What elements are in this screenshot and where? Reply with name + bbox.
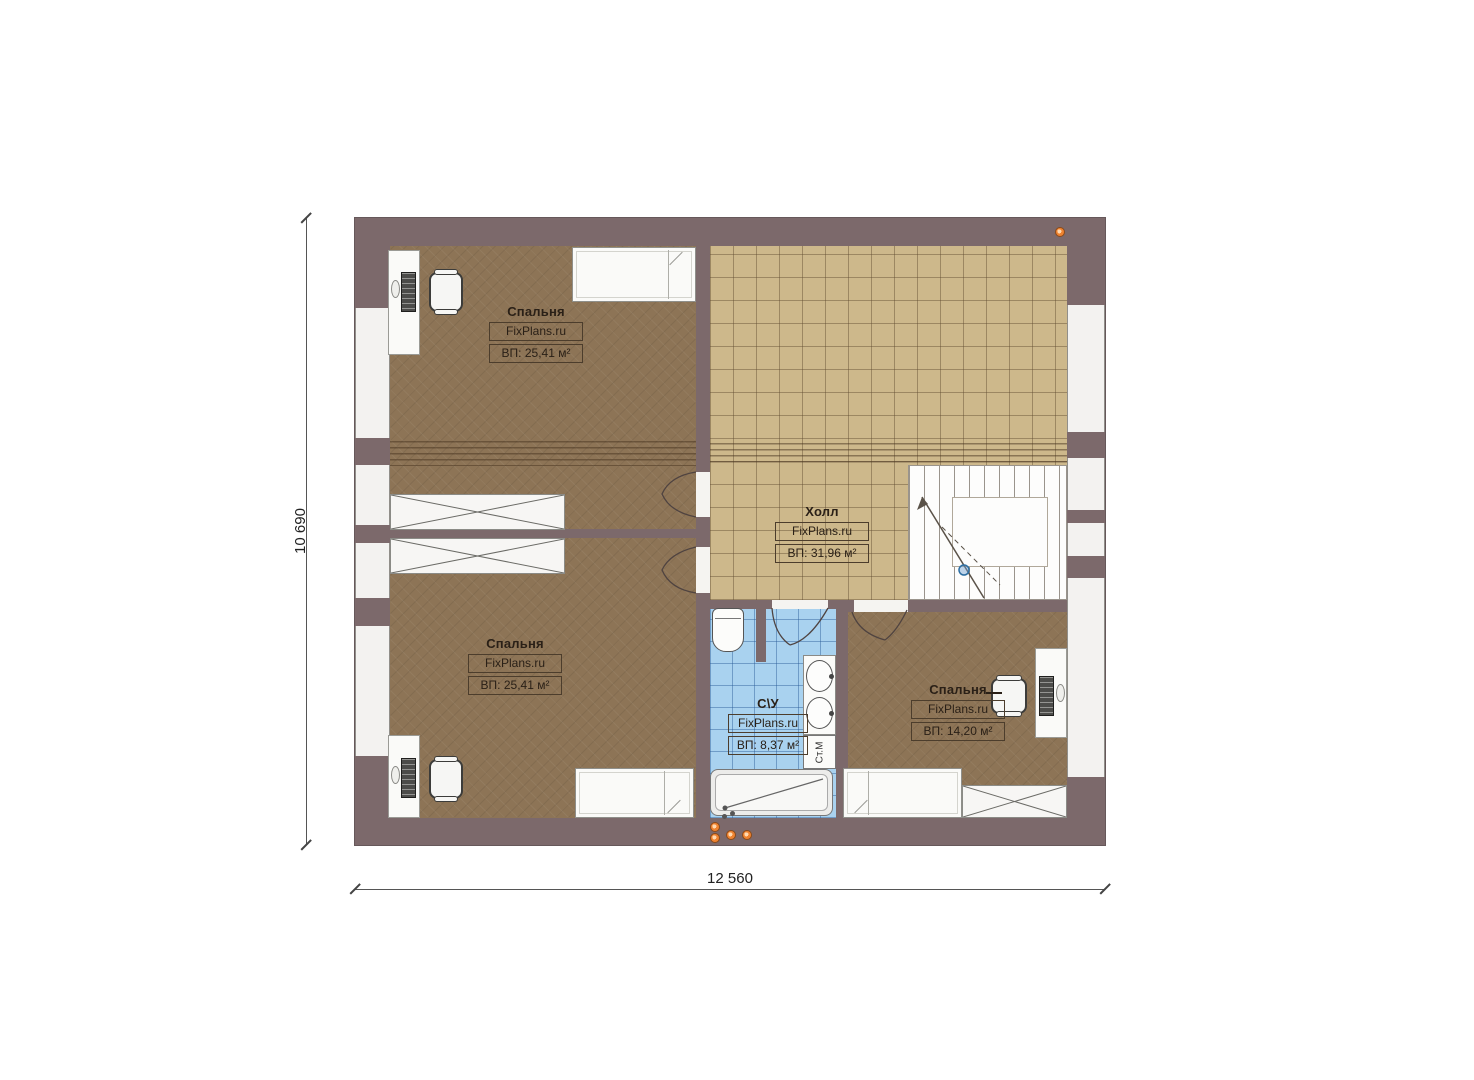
- brand-label: FixPlans.ru: [468, 654, 562, 673]
- socket-marker-icon: [742, 830, 752, 840]
- washing-machine-label: Ст.М: [814, 741, 825, 763]
- socket-marker-icon: [710, 822, 720, 832]
- label-leader-line: [986, 692, 1002, 694]
- toilet-icon: [712, 608, 744, 652]
- room-area: ВП: 8,37 м²: [728, 736, 808, 755]
- bed: [843, 768, 962, 818]
- room-label-hall: Холл FixPlans.ru ВП: 31,96 м²: [756, 504, 888, 563]
- wardrobe: [390, 538, 565, 574]
- room-name: Спальня: [486, 636, 544, 651]
- mouse-icon: [391, 280, 400, 298]
- dimension-line-width: [355, 889, 1105, 890]
- computer-icon: [401, 758, 416, 798]
- wardrobe: [962, 785, 1067, 818]
- room-name: Спальня: [929, 682, 987, 697]
- sink-icon: [806, 660, 833, 692]
- faucet-icon: [722, 814, 727, 819]
- socket-marker-icon: [726, 830, 736, 840]
- stairs-direction-line: [908, 465, 1067, 600]
- bathtub-detail: [711, 770, 834, 817]
- room-label-bedroom-3: Спальня FixPlans.ru ВП: 14,20 м²: [895, 682, 1021, 741]
- brand-label: FixPlans.ru: [728, 714, 808, 733]
- mouse-icon: [1056, 684, 1065, 702]
- door-swing-icon: [845, 605, 920, 655]
- room-label-bedroom-2: Спальня FixPlans.ru ВП: 25,41 м²: [452, 636, 578, 695]
- room-label-bathroom: С\У FixPlans.ru ВП: 8,37 м²: [722, 696, 814, 755]
- room-area: ВП: 25,41 м²: [468, 676, 562, 695]
- bed: [572, 247, 696, 302]
- brand-label: FixPlans.ru: [775, 522, 869, 541]
- mouse-icon: [391, 766, 400, 784]
- room-area: ВП: 31,96 м²: [775, 544, 869, 563]
- door-swing-icon: [760, 600, 840, 655]
- room-name: Холл: [805, 504, 838, 519]
- brand-label: FixPlans.ru: [911, 700, 1005, 719]
- wardrobe: [390, 494, 565, 530]
- room-name: С\У: [757, 696, 779, 711]
- bed: [575, 768, 694, 818]
- dimension-width-label: 12 560: [680, 870, 780, 887]
- computer-icon: [1039, 676, 1054, 716]
- office-chair-icon: [429, 272, 463, 312]
- office-chair-icon: [429, 759, 463, 799]
- faucet-icon: [730, 811, 735, 816]
- room-label-bedroom-1: Спальня FixPlans.ru ВП: 25,41 м²: [470, 304, 602, 363]
- floor-plan: Ст.М Спальня FixPlans.ru ВП: 25,41 м² Хо…: [0, 0, 1474, 1080]
- room-area: ВП: 25,41 м²: [489, 344, 583, 363]
- door-swing-icon: [640, 470, 710, 520]
- room-name: Спальня: [507, 304, 565, 319]
- brand-label: FixPlans.ru: [489, 322, 583, 341]
- bathtub: [710, 769, 833, 816]
- room-area: ВП: 14,20 м²: [911, 722, 1005, 741]
- stairs-level-marker-icon: [959, 565, 969, 575]
- socket-marker-icon: [710, 833, 720, 843]
- computer-icon: [401, 272, 416, 312]
- door-swing-icon: [640, 545, 710, 595]
- dimension-height-label: 10 690: [292, 491, 312, 571]
- socket-marker-icon: [1055, 227, 1065, 237]
